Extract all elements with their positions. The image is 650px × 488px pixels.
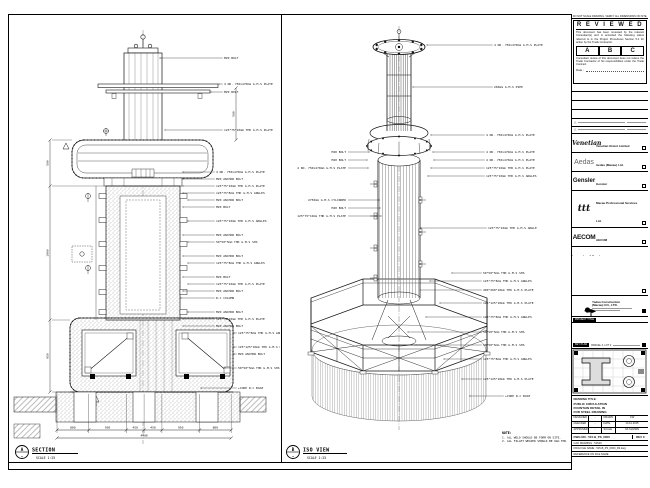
- status-checkbox: [642, 184, 646, 188]
- iso-view: NOTE: 1. ALL WELD SHOULD BE FORM ON SITE…: [282, 16, 572, 462]
- reference-row: REFERENCE ON FILE NAME: [572, 452, 648, 458]
- callout-label: 4 NO. 750x470mm G.M.S PLATE: [486, 150, 535, 154]
- revision-row: △: [572, 119, 648, 127]
- signature-row: [572, 110, 648, 119]
- key-plan-note: PARCEL 3, LOT 2: [591, 344, 611, 347]
- iso-view-label: B - ISO VIEW SCALE 1:25: [287, 446, 348, 460]
- key-plan-header-bar: [613, 345, 640, 346]
- section-bubble-letter: A: [21, 447, 24, 452]
- callout-label: 125*75*10mm THK G.M.S ANGLE: [488, 226, 537, 230]
- callout-label: +CORE R.C BASE: [238, 386, 263, 390]
- callout-label: M20 BOLT: [332, 206, 347, 210]
- consultant-name: Gensler: [596, 182, 607, 186]
- callout-label: 50*50*5mm THK G.M.S SHS: [483, 343, 525, 347]
- dimension-value: 500: [45, 160, 49, 166]
- callout-label: 125*75*8mm THK G.M.S ANGLES: [216, 261, 265, 265]
- scale-value: AS SHOWN: [616, 427, 648, 433]
- callout-label: 4 NO. 750x470mm G.M.S PLATE: [224, 82, 273, 86]
- dimension-value: 1900: [45, 249, 49, 256]
- section-bubble-ref: -: [21, 453, 24, 458]
- status-checkbox: [642, 289, 646, 293]
- callout-label: 50*50*5mm THK G.M.S SHS: [483, 271, 525, 275]
- status-checkbox: [642, 165, 646, 169]
- callout-label: +CORE R.C BASE: [505, 394, 530, 398]
- callout-label: 125*75*10mm THK G.M.S ANGLES: [216, 219, 267, 223]
- callout-label: 125*125*10mm THK G.M.S PLATE: [483, 377, 534, 381]
- dimension-value: 950: [178, 425, 184, 429]
- consultant-box: Gensler Gensler: [572, 172, 648, 191]
- callout-label: 125*125*10mm THK G.M.S PLATE: [483, 301, 534, 305]
- callout-label: 125*75*8mm THK G.M.S ANGLES: [238, 331, 280, 335]
- dimension-value: 450: [132, 425, 138, 429]
- callout-label: M20 BOLT: [224, 90, 239, 94]
- revision-row: △: [572, 127, 648, 135]
- callout-label: 125*75*10mm THK G.M.S PLATE: [216, 282, 265, 286]
- title-block-row: APPROVED - SCALE AS SHOWN: [572, 428, 648, 434]
- contractor-stamp-square: [642, 309, 646, 313]
- reviewed-stamp-section: R E V I E W E D This document has been r…: [572, 19, 648, 92]
- callout-label: M20 BOLT: [216, 275, 231, 279]
- callout-label: M20 ANCHOR BOLT: [216, 198, 243, 202]
- section-view: A - SECTION SCALE 1:25 M20 BOLT4 NO. 750…: [10, 16, 280, 462]
- grade-b-cell: B: [599, 46, 622, 56]
- callout-label: ⌀60mm G.M.S PIPE: [494, 85, 523, 89]
- callout-label: M20 ANCHOR BOLT: [238, 352, 265, 356]
- callout-label: 125*75*8mm THK G.M.S ANGLES: [483, 315, 532, 319]
- callout-label: M20 BOLT: [332, 150, 347, 154]
- callout-label: 4 NO. 750x470mm G.M.S PLATE: [486, 158, 535, 162]
- dwg-no-label: DWG NO :: [574, 435, 588, 439]
- dimension-value: 950: [45, 353, 49, 359]
- callout-label: 400*200*10mm THK G.M.S PLATE: [483, 288, 534, 292]
- revision-triangle-icon: △: [574, 128, 576, 131]
- key-plan-label: KEY PLAN: [573, 343, 589, 347]
- callout-label: 125*75*8mm THK G.M.S ANGLES: [216, 191, 265, 195]
- grade-c-cell: C: [621, 46, 644, 56]
- reviewed-grade-row: A B C: [576, 46, 644, 56]
- drawing-title-block: DRAWING TITLE: PUBLIC CIRCULATION FOUNTA…: [572, 396, 648, 470]
- callout-label: 125*75*8mm THK G.M.S ANGLES: [483, 357, 532, 361]
- callout-label: 4 NO. 750x470mm G.M.S PLATE: [494, 43, 543, 47]
- dimension-value: 450: [150, 425, 156, 429]
- callout-label: M20 ANCHOR BOLT: [216, 324, 243, 328]
- callout-label: M20 BOLT: [332, 158, 347, 162]
- title-block-strip: DO NOT SCALE DRAWING. VERIFY ALL DIMENSI…: [571, 14, 648, 470]
- callout-label: R.C COLUMN: [216, 296, 234, 300]
- general-notes: NOTE: 1. ALL WELD SHOULD BE FORM ON SITE…: [502, 431, 568, 443]
- consultant-name: AECOM: [596, 238, 607, 242]
- callout-label: 125*75*10mm THK G.M.S PLATE: [224, 128, 273, 132]
- dimension-value: 950: [105, 425, 111, 429]
- key-plan-corner-square: [642, 343, 646, 347]
- key-plan-section: KEY PLAN PARCEL 3, LOT 2: [572, 342, 648, 396]
- consultant-name: Macau Professional Services Ltd.: [596, 201, 637, 223]
- dwg-no-value: 515-B_PS_0000: [588, 435, 609, 439]
- reviewed-paragraph-1: This document has been reviewed by the r…: [576, 31, 644, 45]
- callout-label: 125*75*10mm THK G.M.S PLATE: [216, 184, 265, 188]
- approved-value: -: [589, 427, 602, 433]
- consultant-box: Venetian Venetian Orient Limited: [572, 134, 648, 153]
- dwg-no-row: DWG NO : 515-B_PS_0000 REV C: [572, 434, 648, 441]
- callout-label: M20 ANCHOR BOLT: [216, 289, 243, 293]
- consultant-box: Aedas Aedas (Macau) Ltd.: [572, 153, 648, 172]
- consultant-box: ttt Macau Professional Services Ltd.: [572, 191, 648, 228]
- drawing-sheet: A - SECTION SCALE 1:25 M20 BOLT4 NO. 750…: [0, 0, 650, 488]
- consultant-logo: AECOM: [572, 234, 596, 241]
- revision-triangle-icon: △: [574, 121, 576, 124]
- scale-label: SCALE: [602, 427, 616, 433]
- callout-label: ⌀750mm G.M.S CYLINDER: [308, 198, 346, 202]
- callout-label: M20 BOLT: [224, 56, 239, 60]
- iso-title: ISO VIEW: [303, 448, 330, 454]
- callout-label: M20 ANCHOR BOLT: [216, 310, 243, 314]
- status-checkbox: [642, 240, 646, 244]
- iso-scale: SCALE 1:25: [307, 456, 326, 460]
- consultant-logo: Gensler: [572, 178, 596, 184]
- callout-label: 125*75*10mm THK G.M.S ANGLES: [486, 174, 537, 178]
- dimension-value: 4400: [140, 434, 147, 438]
- callout-label: M20 BOLT: [216, 205, 231, 209]
- project-title-chip: PROJECT TITLE: [573, 318, 596, 322]
- contractor-box: Yadea Construction (Macau) CO., LTD.: [572, 296, 648, 317]
- date-fill-line: [586, 69, 644, 72]
- consultant-list: Venetian Venetian Orient Limited Aedas A…: [572, 134, 648, 256]
- empty-stamp-box: [572, 256, 648, 296]
- reviewed-title: R E V I E W E D: [576, 22, 644, 30]
- consultant-logo: Aedas: [572, 159, 596, 166]
- consultant-logo: Venetian: [572, 140, 596, 147]
- signature-row: [572, 101, 648, 110]
- iso-bubble-letter: B: [292, 447, 295, 452]
- section-title: SECTION: [32, 448, 55, 454]
- grade-a-cell: A: [576, 46, 599, 56]
- status-checkbox: [642, 221, 646, 225]
- consultant-box: AECOM AECOM: [572, 228, 648, 247]
- iso-bubble-ref: -: [292, 453, 295, 458]
- callout-label: 4 NO. 750x470mm G.M.S PLATE: [216, 170, 265, 174]
- section-scale: SCALE 1:25: [36, 456, 55, 460]
- status-checkbox: [642, 146, 646, 150]
- callout-label: 50*50*5mm THK G.M.S SHS: [483, 330, 525, 334]
- signature-row: [572, 92, 648, 101]
- drawing-title-line: FOR STEEL DRAWING: [574, 410, 649, 414]
- date-label: Date :: [576, 68, 584, 72]
- callout-label: 125*125*10mm THK G.M.S PLATE: [238, 345, 280, 349]
- callout-label: 4 NO. 750x470mm G.M.S PLATE: [297, 166, 346, 170]
- consultant-name: Aedas (Macau) Ltd.: [596, 163, 624, 167]
- key-plan-drawing: [572, 349, 647, 394]
- reviewed-date-row: Date :: [576, 68, 644, 72]
- callout-label: M20 ANCHOR BOLT: [216, 233, 243, 237]
- dimension-value: 800: [213, 425, 219, 429]
- dimension-value: 800: [70, 425, 76, 429]
- project-title-row: PROJECT TITLE: [572, 317, 648, 323]
- callout-label: 50*50*5mm THK G.M.S SHS: [238, 366, 280, 370]
- section-view-label: A - SECTION SCALE 1:25: [16, 446, 79, 460]
- callout-label: 125*75*8mm THK G.M.S ANGLES: [483, 279, 532, 283]
- callout-label: M20 ANCHOR BOLT: [216, 254, 243, 258]
- callout-label: 125*75*10mm THK G.M.S PLATE: [486, 166, 535, 170]
- note-item-2: 2. ALL FILLET WELDED SHOULD BE 6mm THK.: [502, 439, 568, 443]
- consultant-name: Venetian Orient Limited: [596, 144, 630, 148]
- callout-label: M20 ANCHOR BOLT: [216, 177, 243, 181]
- dimension-value: 500: [232, 111, 236, 117]
- consultant-box: Langdon&Seah Langdon Seah: [572, 247, 648, 256]
- callout-label: 4 NO. 750x470mm G.M.S PLATE: [486, 133, 535, 137]
- revision-value: REV C: [632, 435, 648, 439]
- approved-label: APPROVED: [572, 427, 589, 433]
- note-heading: NOTE:: [502, 431, 512, 435]
- callout-label: 50*50*5mm THK G.M.S SHS: [216, 240, 258, 244]
- reviewed-paragraph-2: Consultant review of this document does …: [576, 57, 644, 67]
- callout-label: 125*75*10mm THK G.M.S PLATE: [297, 214, 346, 218]
- reviewed-stamp: R E V I E W E D This document has been r…: [573, 20, 647, 84]
- drawing-area-bottom-line: [8, 462, 571, 463]
- callout-label: 125*75*10mm THK G.M.S PLATE: [216, 317, 265, 321]
- consultant-logo: ttt: [572, 204, 596, 214]
